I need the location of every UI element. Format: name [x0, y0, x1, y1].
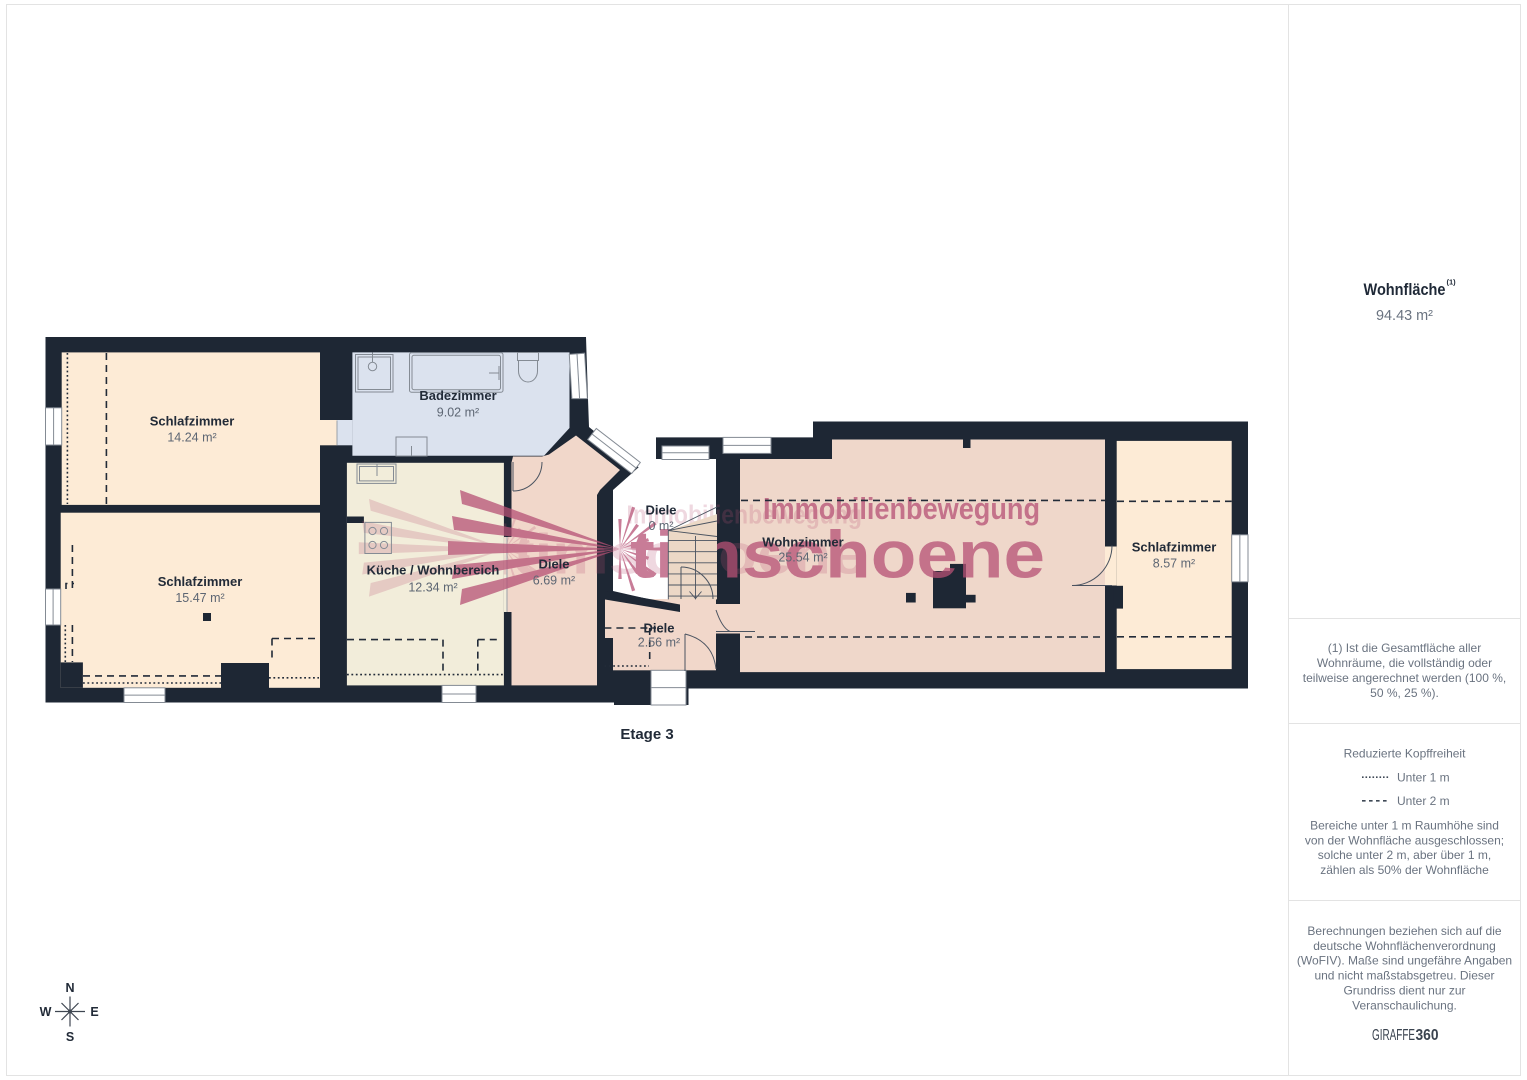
svg-text:Badezimmer: Badezimmer: [419, 388, 496, 403]
svg-text:Reduzierte Kopffreiheit: Reduzierte Kopffreiheit: [1344, 747, 1467, 761]
svg-text:14.24 m²: 14.24 m²: [167, 431, 216, 445]
svg-text:Bereiche unter 1 m Raumhöhe si: Bereiche unter 1 m Raumhöhe sind: [1310, 818, 1499, 832]
svg-text:Diele: Diele: [538, 557, 569, 572]
svg-text:2.56 m²: 2.56 m²: [638, 636, 680, 650]
svg-text:25.54 m²: 25.54 m²: [778, 551, 827, 565]
svg-text:Unter 1 m: Unter 1 m: [1397, 771, 1450, 785]
svg-text:Schlafzimmer: Schlafzimmer: [1132, 540, 1217, 555]
svg-text:8.57 m²: 8.57 m²: [1153, 557, 1195, 571]
svg-text:Berechnungen beziehen sich auf: Berechnungen beziehen sich auf die: [1307, 924, 1501, 938]
svg-text:15.47 m²: 15.47 m²: [175, 591, 224, 605]
svg-text:W: W: [40, 1005, 52, 1019]
svg-text:GIRAFFE: GIRAFFE: [1372, 1027, 1415, 1044]
svg-text:Wohnzimmer: Wohnzimmer: [762, 535, 843, 550]
svg-text:E: E: [90, 1005, 98, 1019]
svg-text:Diele: Diele: [643, 621, 674, 636]
svg-text:Etage 3: Etage 3: [620, 726, 673, 743]
svg-text:solche unter 2 m, aber über 1: solche unter 2 m, aber über 1 m,: [1318, 848, 1491, 862]
svg-text:0 m²: 0 m²: [649, 519, 674, 533]
svg-text:und nicht maßstabsgetreu. Dies: und nicht maßstabsgetreu. Dieser: [1314, 969, 1494, 983]
svg-text:Schlafzimmer: Schlafzimmer: [150, 414, 235, 429]
svg-text:teilweise angerechnet werden (: teilweise angerechnet werden (100 %,: [1303, 671, 1506, 685]
svg-text:Veranschaulichung.: Veranschaulichung.: [1352, 998, 1457, 1012]
svg-text:360: 360: [1416, 1027, 1439, 1044]
svg-text:von der Wohnfläche ausgeschlos: von der Wohnfläche ausgeschlossen;: [1305, 833, 1504, 847]
svg-text:Küche / Wohnbereich: Küche / Wohnbereich: [367, 563, 500, 578]
svg-text:6.69 m²: 6.69 m²: [533, 574, 575, 588]
svg-text:zählen als 50% der Wohnfläche: zählen als 50% der Wohnfläche: [1320, 863, 1489, 877]
svg-text:(1) Ist die Gesamtfläche aller: (1) Ist die Gesamtfläche aller: [1328, 641, 1481, 655]
svg-text:(1): (1): [1447, 278, 1457, 287]
svg-text:12.34 m²: 12.34 m²: [408, 581, 457, 595]
svg-text:S: S: [66, 1030, 74, 1044]
svg-text:N: N: [65, 981, 74, 995]
svg-text:50 %, 25 %).: 50 %, 25 %).: [1370, 686, 1439, 700]
svg-text:9.02 m²: 9.02 m²: [437, 406, 479, 420]
svg-text:deutsche Wohnflächenverordnung: deutsche Wohnflächenverordnung: [1313, 939, 1496, 953]
svg-text:94.43 m²: 94.43 m²: [1376, 308, 1433, 324]
svg-text:Unter 2 m: Unter 2 m: [1397, 794, 1450, 808]
svg-text:(WoFIV). Maße sind ungefähre A: (WoFIV). Maße sind ungefähre Angaben: [1297, 954, 1512, 968]
svg-text:Wohnfläche: Wohnfläche: [1364, 281, 1446, 299]
svg-text:Wohnräume, die vollständig ode: Wohnräume, die vollständig oder: [1317, 656, 1492, 670]
svg-text:Diele: Diele: [645, 503, 676, 518]
svg-text:Grundriss dient nur zur: Grundriss dient nur zur: [1343, 984, 1465, 998]
svg-text:Schlafzimmer: Schlafzimmer: [158, 574, 243, 589]
